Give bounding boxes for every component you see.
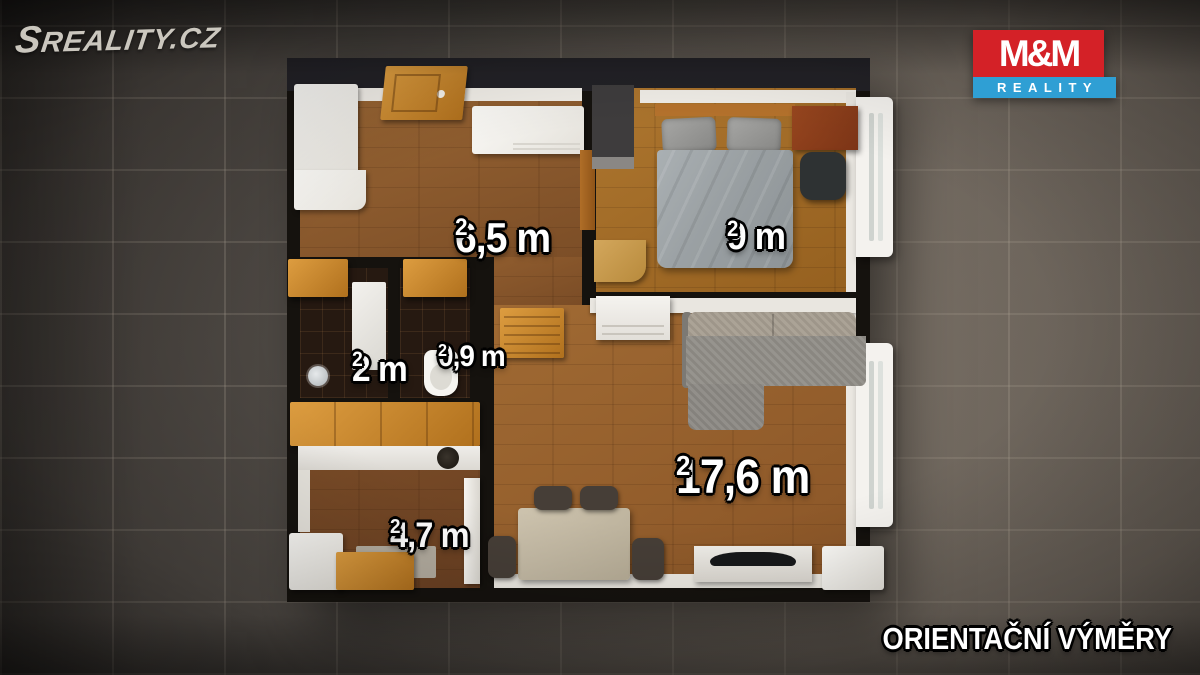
bedroom-wall-face bbox=[640, 90, 856, 103]
bedroom-window-bay bbox=[856, 97, 893, 257]
desk-chair bbox=[800, 152, 846, 200]
sofa-backrest bbox=[688, 312, 856, 338]
entry-bench bbox=[500, 308, 564, 358]
bed-headboard bbox=[655, 104, 795, 116]
floorplan-scene: SREALITY.CZ M&M REALITY bbox=[0, 0, 1200, 675]
washing-machine bbox=[289, 533, 343, 590]
sreality-watermark: SREALITY.CZ bbox=[13, 13, 224, 61]
dining-chair bbox=[488, 536, 516, 578]
dining-chair bbox=[534, 486, 572, 510]
hall-closet bbox=[294, 84, 358, 180]
wc-door bbox=[403, 259, 467, 297]
kitchen-ledge bbox=[298, 470, 310, 532]
sideboard bbox=[596, 296, 670, 340]
corner-sofa bbox=[686, 336, 866, 386]
nightstand bbox=[594, 240, 646, 282]
bedroom-wardrobe bbox=[592, 85, 634, 157]
dining-chair bbox=[632, 538, 664, 580]
hall-dresser bbox=[472, 106, 584, 154]
kitchen-lower-cabinet bbox=[336, 552, 414, 590]
top-wall-shadow bbox=[287, 58, 870, 91]
bathroom-door bbox=[288, 259, 348, 297]
dining-chair bbox=[580, 486, 618, 510]
sofa-chaise bbox=[688, 384, 764, 430]
mm-reality-logo: M&M REALITY bbox=[973, 30, 1116, 98]
corridor-floor bbox=[494, 257, 582, 305]
mm-logo-wordmark: REALITY bbox=[973, 77, 1116, 98]
kitchen-cabinets bbox=[290, 402, 480, 446]
tv bbox=[710, 552, 796, 566]
kitchen-sink bbox=[437, 447, 459, 469]
shower-head bbox=[308, 366, 328, 386]
desk bbox=[792, 106, 858, 150]
apartment-floorplan: 6,5 m2 9 m2 2 m2 0,9 m2 17,6 m2 4,7 m2 bbox=[280, 55, 900, 605]
pillow bbox=[661, 117, 717, 154]
dining-table bbox=[518, 508, 630, 580]
living-corner-cabinet bbox=[822, 546, 884, 590]
entry-wardrobe bbox=[380, 66, 468, 120]
disclaimer-text: ORIENTAČNÍ VÝMĚRY bbox=[883, 621, 1172, 657]
hall-closet-step bbox=[294, 170, 366, 210]
mm-logo-mark: M&M bbox=[973, 30, 1104, 77]
pillow bbox=[726, 117, 781, 153]
